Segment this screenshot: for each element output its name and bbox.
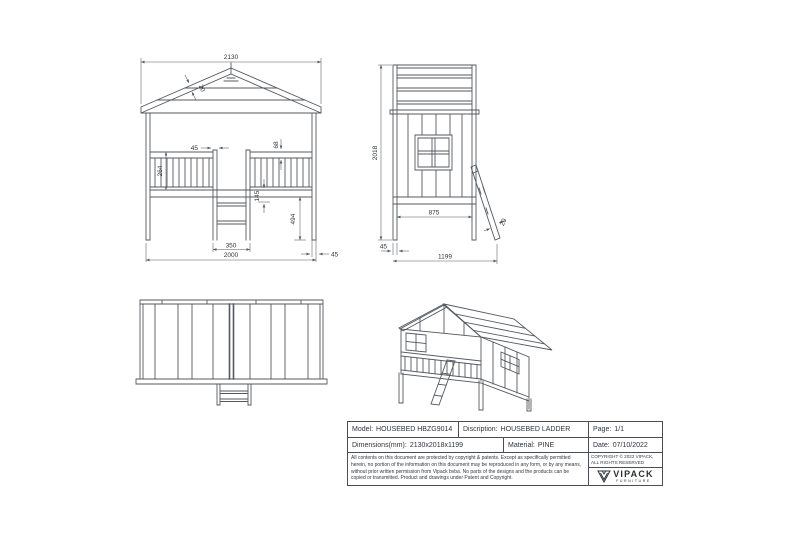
title-block-row-3: All contents on this document are protec… xyxy=(348,453,662,485)
date-value: 07/10/2022 xyxy=(613,442,648,449)
material-cell: Material: PINE xyxy=(504,438,589,452)
page-cell: Page: 1/1 xyxy=(589,422,662,437)
title-block-row-2: Dimensions(mm): 2130x2018x1199 Material:… xyxy=(348,438,662,453)
dim-front-bed-frame: 145 xyxy=(254,190,261,201)
dim-side-inner-depth: 875 xyxy=(429,210,440,217)
front-ladder xyxy=(213,150,250,240)
front-roof xyxy=(141,63,321,113)
side-ladder xyxy=(471,165,500,240)
brand-cell: COPYRIGHT © 2022 VIPACK, ALL RIGHTS RESE… xyxy=(589,453,662,485)
dim-front-overall-width: 2130 xyxy=(224,54,239,61)
material-value: PINE xyxy=(538,442,554,449)
side-dimensions: 2018 875 45 1199 20 xyxy=(372,65,509,264)
isometric-view xyxy=(399,304,552,411)
dimensions-value: 2130x2018x1199 xyxy=(410,442,463,449)
description-cell: Discription: HOUSEBED LADDER xyxy=(459,422,589,437)
dim-front-rail-board: 68 xyxy=(273,141,280,149)
model-value: HOUSEBED HBZG9014 xyxy=(376,426,452,433)
date-label: Date: xyxy=(593,442,610,449)
side-view: 2018 875 45 1199 20 xyxy=(372,65,509,264)
front-view: 2130 20 45 68 264 145 494 350 20 xyxy=(141,54,339,262)
brand-tagline: FURNITURE xyxy=(616,480,651,484)
page-label: Page: xyxy=(593,426,611,433)
dim-side-post-depth: 45 xyxy=(380,244,388,251)
vipack-logo-text: VIPACK FURNITURE xyxy=(613,470,654,484)
page-value: 1/1 xyxy=(614,426,624,433)
dim-side-overall-height: 2018 xyxy=(372,145,379,160)
model-label: Model: xyxy=(352,426,373,433)
model-cell: Model: HOUSEBED HBZG9014 xyxy=(348,422,459,437)
plan-ladder xyxy=(217,384,251,405)
vipack-logo-icon xyxy=(597,470,611,483)
brand-name: VIPACK xyxy=(613,470,654,479)
dim-front-under-bed: 494 xyxy=(290,213,297,224)
dim-front-ladder-width: 350 xyxy=(226,243,237,250)
material-label: Material: xyxy=(508,442,535,449)
description-value: HOUSEBED LADDER xyxy=(501,426,571,433)
title-block-row-1: Model: HOUSEBED HBZG9014 Discription: HO… xyxy=(348,422,662,438)
dimensions-label: Dimensions(mm): xyxy=(352,442,407,449)
dim-front-post-width: 45 xyxy=(331,252,339,259)
dim-side-ladder-board: 20 xyxy=(499,217,509,227)
copyright-short: COPYRIGHT © 2022 VIPACK, ALL RIGHTS RESE… xyxy=(589,453,662,468)
vipack-logo: VIPACK FURNITURE xyxy=(589,468,662,485)
dim-front-roof-board: 20 xyxy=(197,84,206,94)
date-cell: Date: 07/10/2022 xyxy=(589,438,662,452)
copyright-notice: All contents on this document are protec… xyxy=(348,453,589,485)
title-block: Model: HOUSEBED HBZG9014 Discription: HO… xyxy=(347,421,663,486)
plan-view xyxy=(136,300,327,405)
description-label: Discription: xyxy=(463,426,498,433)
dim-front-base-width: 2000 xyxy=(224,252,239,259)
dim-front-rail-height: 264 xyxy=(157,165,164,176)
dimensions-cell: Dimensions(mm): 2130x2018x1199 xyxy=(348,438,504,452)
dim-front-ladder-stile: 45 xyxy=(191,145,199,152)
dim-side-overall-depth: 1199 xyxy=(438,254,452,261)
